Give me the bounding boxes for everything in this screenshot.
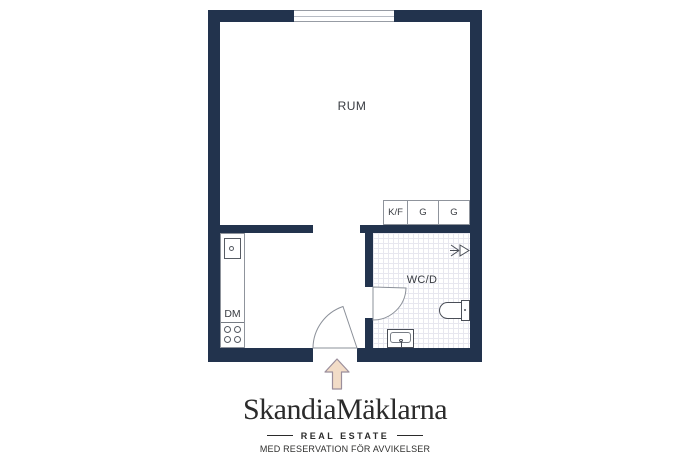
door-swings bbox=[208, 10, 482, 362]
wc-door-swing bbox=[373, 287, 406, 320]
tagline-rule-right bbox=[397, 435, 423, 436]
brand-disclaimer: MED RESERVATION FÖR AVVIKELSER bbox=[0, 444, 690, 454]
entrance-door-swing bbox=[313, 307, 357, 349]
floor-plan: RUM WC/D K/F G G DM bbox=[0, 0, 690, 460]
tagline-rule-left bbox=[267, 435, 293, 436]
brand-tagline: REAL ESTATE bbox=[301, 431, 390, 441]
brand-tagline-row: REAL ESTATE bbox=[0, 431, 690, 441]
brand-block: SkandiaMäklarna REAL ESTATE MED RESERVAT… bbox=[0, 394, 690, 454]
entrance-arrow-icon bbox=[324, 358, 350, 390]
brand-name: SkandiaMäklarna bbox=[0, 394, 690, 426]
